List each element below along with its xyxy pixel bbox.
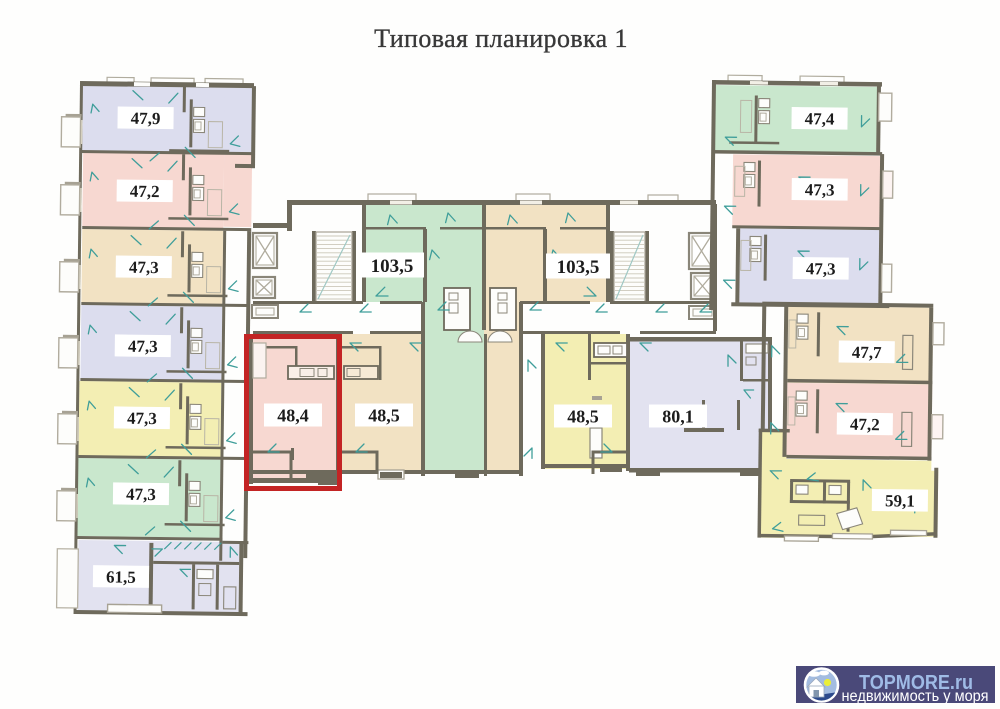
svg-text:103,5: 103,5 (371, 256, 414, 277)
svg-text:недвижимость у моря: недвижимость у моря (842, 688, 989, 705)
svg-text:Типовая планировка 1: Типовая планировка 1 (374, 24, 628, 53)
svg-text:103,5: 103,5 (557, 257, 600, 278)
svg-text:48,5: 48,5 (368, 405, 400, 425)
svg-text:47,4: 47,4 (805, 109, 835, 128)
svg-text:61,5: 61,5 (106, 567, 136, 586)
svg-text:47,9: 47,9 (131, 109, 161, 128)
svg-text:47,3: 47,3 (129, 258, 159, 277)
svg-text:47,3: 47,3 (805, 180, 835, 199)
svg-text:80,1: 80,1 (662, 406, 694, 426)
svg-text:47,3: 47,3 (127, 409, 157, 428)
svg-text:59,1: 59,1 (885, 491, 915, 510)
svg-text:47,3: 47,3 (126, 485, 156, 504)
svg-text:47,3: 47,3 (806, 259, 836, 278)
svg-text:47,2: 47,2 (130, 182, 160, 201)
svg-text:47,7: 47,7 (852, 343, 882, 362)
svg-text:47,2: 47,2 (850, 415, 880, 434)
svg-text:47,3: 47,3 (128, 337, 158, 356)
svg-text:48,5: 48,5 (567, 406, 599, 426)
svg-text:48,4: 48,4 (277, 405, 309, 425)
